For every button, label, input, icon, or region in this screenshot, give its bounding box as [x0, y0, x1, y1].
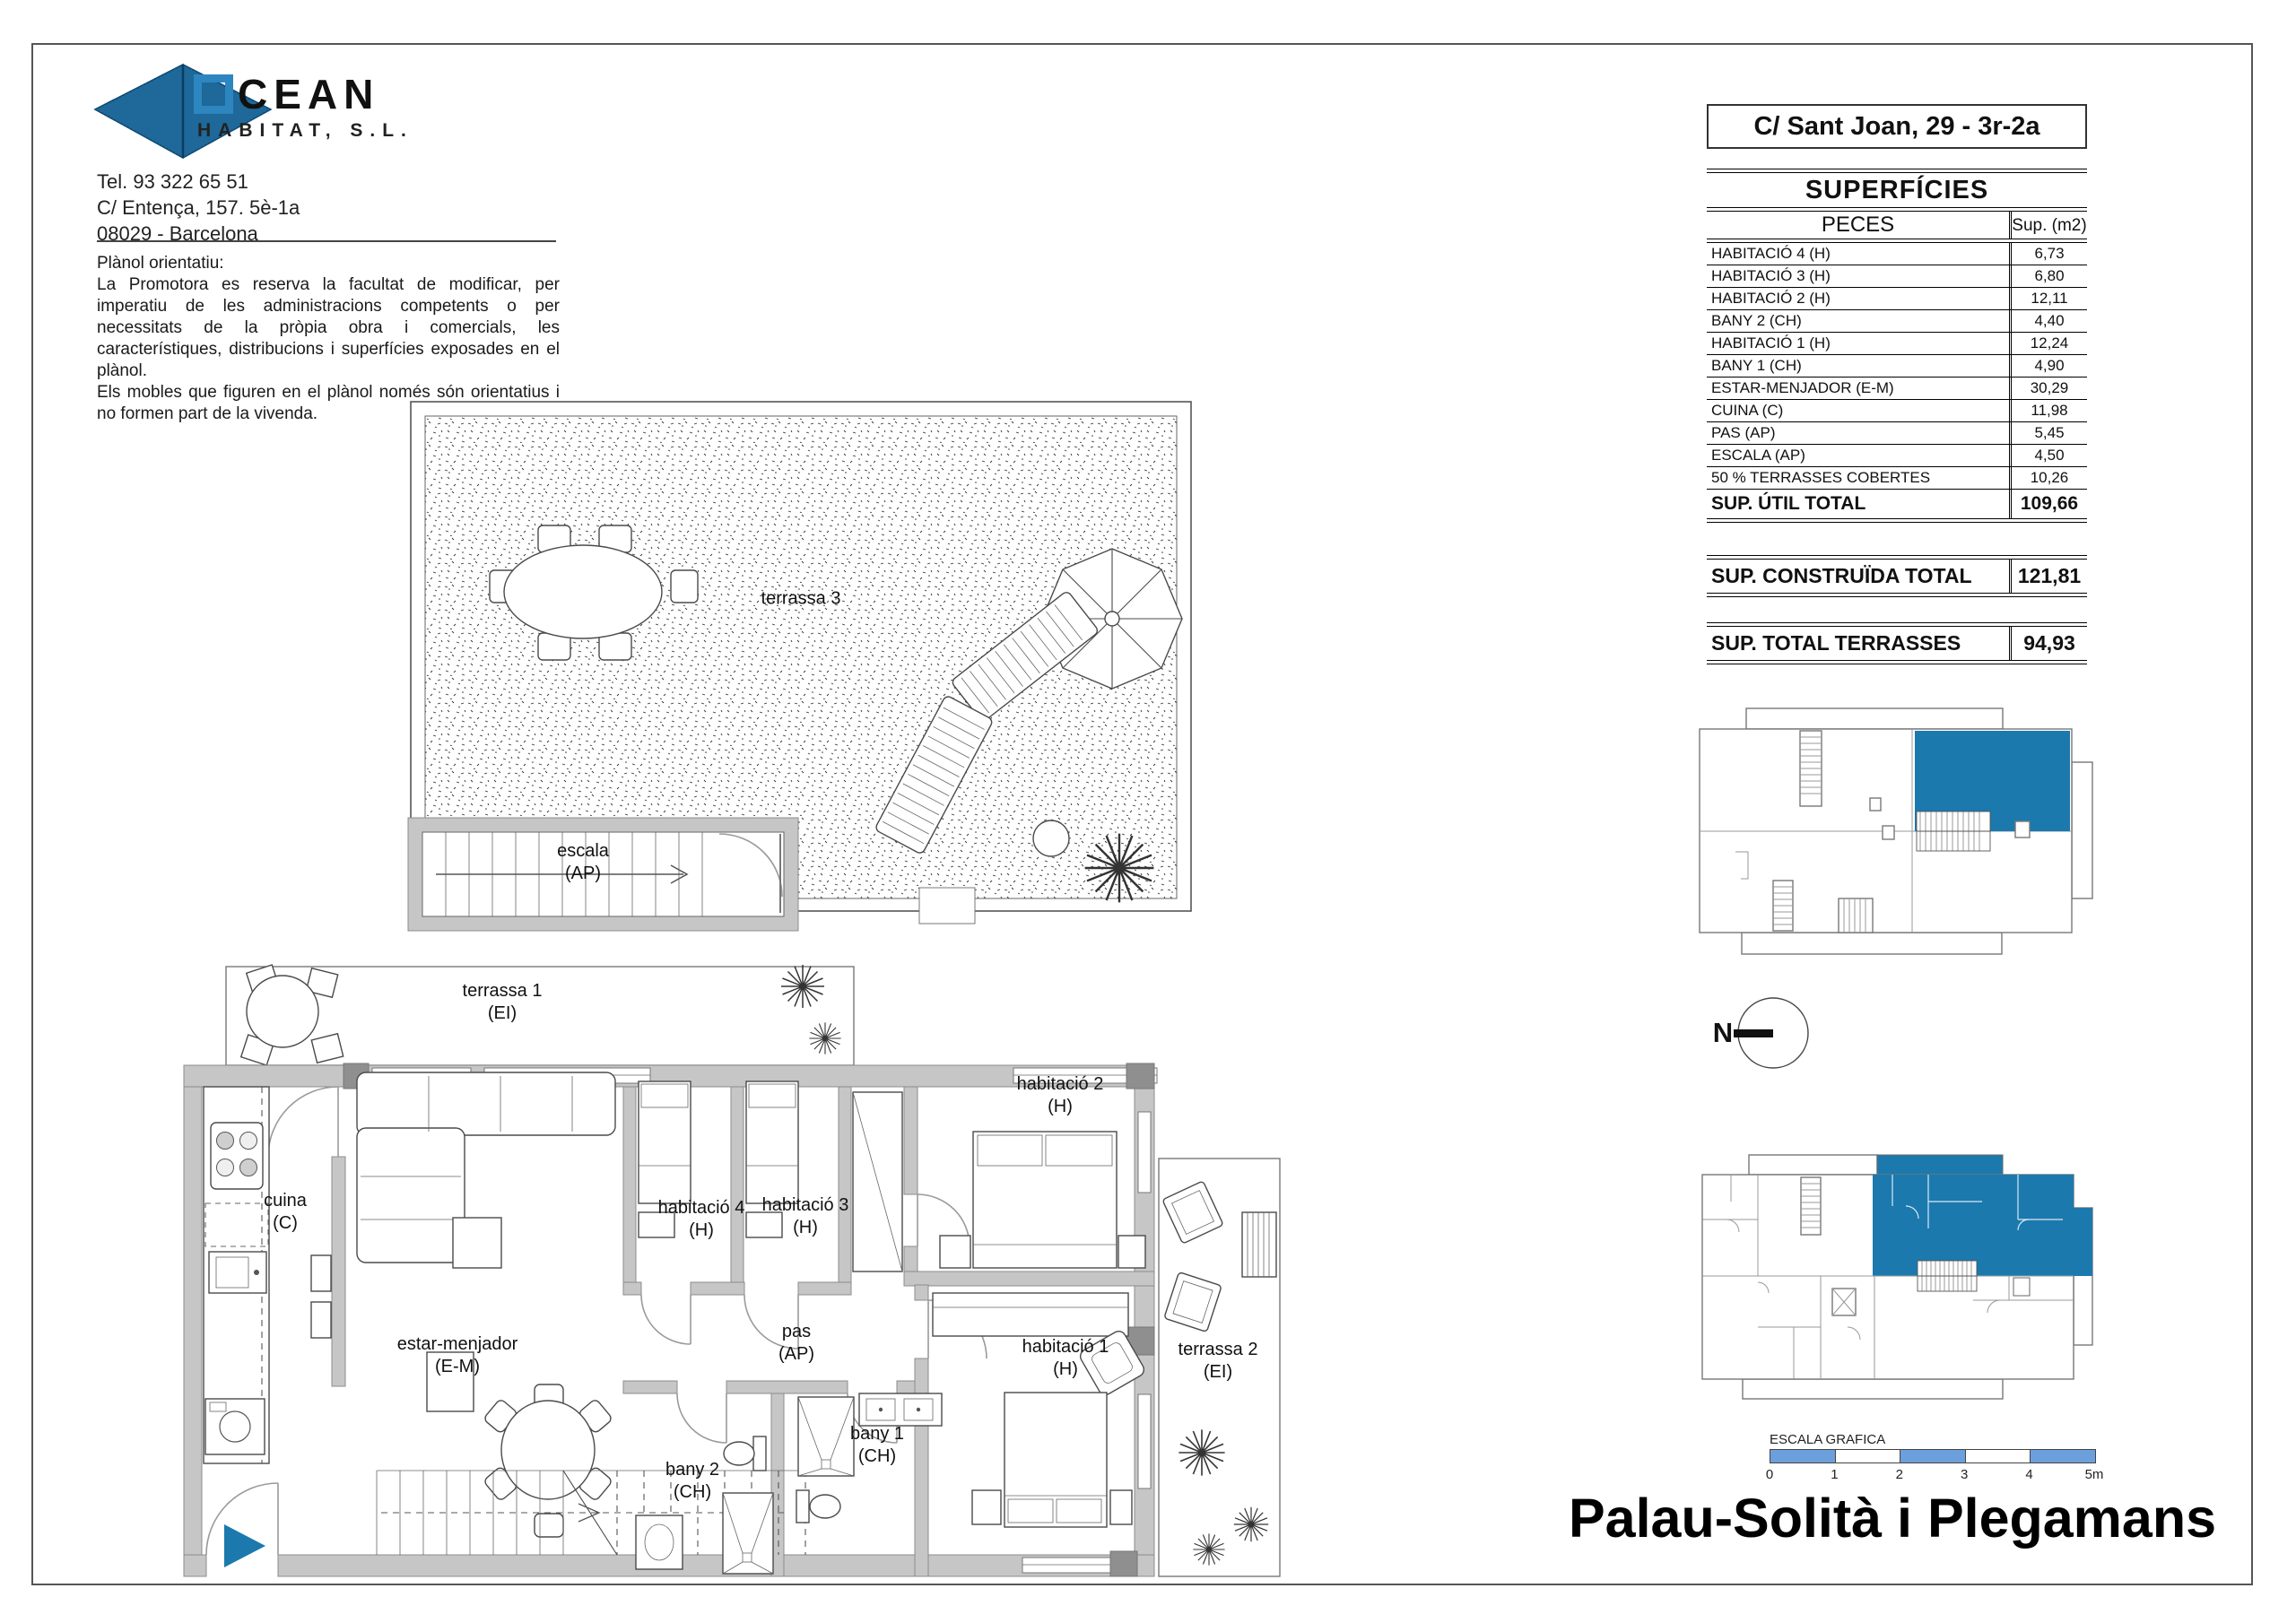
- logo: CEAN HABITAT, S.L.: [93, 54, 631, 170]
- room-name: cuina: [264, 1190, 307, 1212]
- room-code: (AP): [778, 1343, 814, 1366]
- room-label-cuina: cuina (C): [264, 1190, 307, 1235]
- surface-row: BANY 1 (CH)4,90: [1707, 355, 2087, 378]
- side-table: [1033, 820, 1069, 856]
- header-divider: [97, 240, 556, 242]
- scale-tick: 5m: [2085, 1467, 2104, 1482]
- total-terraces-value: 94,93: [2009, 627, 2087, 660]
- room-code: (CH): [665, 1481, 719, 1504]
- scale-ticks: 012345m: [1770, 1467, 2096, 1485]
- scale-bar-segment: [2031, 1450, 2095, 1462]
- surface-row-label: HABITACIÓ 3 (H): [1707, 265, 2009, 287]
- room-name: escala: [557, 840, 609, 863]
- living-room-furniture: [311, 1072, 615, 1537]
- company-header: CEAN HABITAT, S.L.: [93, 54, 631, 170]
- surface-row-label: HABITACIÓ 1 (H): [1707, 333, 2009, 354]
- room-name: bany 2: [665, 1459, 719, 1481]
- scale-tick: 4: [2025, 1467, 2032, 1482]
- surfaces-panel: C/ Sant Joan, 29 - 3r-2a SUPERFÍCIES PEC…: [1707, 104, 2087, 664]
- key-plan-floor: [1695, 1148, 2126, 1408]
- room-name: estar-menjador: [397, 1333, 518, 1356]
- room-code: (C): [264, 1212, 307, 1235]
- main-floor-plan: [175, 950, 1296, 1589]
- surface-row: 50 % TERRASSES COBERTES10,26: [1707, 467, 2087, 490]
- surface-row: CUINA (C)11,98: [1707, 400, 2087, 422]
- surface-row-value: 6,80: [2009, 265, 2087, 287]
- surface-row-label: ESCALA (AP): [1707, 445, 2009, 466]
- room-code: (H): [1022, 1358, 1109, 1381]
- scale-bar-label: ESCALA GRAFICA: [1770, 1432, 1885, 1447]
- scale-bar-segment: [1836, 1450, 1901, 1462]
- surface-row: HABITACIÓ 4 (H)6,73: [1707, 243, 2087, 265]
- surface-row: PAS (AP)5,45: [1707, 422, 2087, 445]
- surface-row-label: HABITACIÓ 2 (H): [1707, 288, 2009, 309]
- room-label-terrassa3: terrassa 3: [761, 588, 841, 611]
- room-name: habitació 1: [1022, 1336, 1109, 1358]
- total-util-value: 109,66: [2009, 490, 2087, 518]
- surface-row-value: 5,45: [2009, 422, 2087, 444]
- scale-tick: 3: [1961, 1467, 1968, 1482]
- project-title: Palau-Solità i Plegamans: [1543, 1487, 2242, 1549]
- company-street: C/ Entença, 157. 5è-1a: [97, 195, 300, 221]
- scale-bar-segment: [1770, 1450, 1836, 1462]
- scale-tick: 0: [1766, 1467, 1773, 1482]
- surface-row: HABITACIÓ 3 (H)6,80: [1707, 265, 2087, 288]
- surface-row-value: 4,90: [2009, 355, 2087, 377]
- room-name: habitació 4: [658, 1197, 745, 1219]
- surface-row-value: 10,26: [2009, 467, 2087, 489]
- key-roof-stairs: [1917, 811, 1990, 851]
- total-built-label: SUP. CONSTRUÏDA TOTAL: [1707, 560, 2009, 593]
- surfaces-header-sup: Sup. (m2): [2009, 212, 2087, 239]
- total-terraces-label: SUP. TOTAL TERRASSES: [1707, 627, 2009, 660]
- room-code: (E-M): [397, 1356, 518, 1378]
- rule: [1707, 660, 2087, 664]
- company-city: 08029 - Barcelona: [97, 221, 300, 247]
- surface-row: BANY 2 (CH)4,40: [1707, 310, 2087, 333]
- room-code: (EI): [463, 1002, 543, 1025]
- wardrobe: [853, 1092, 902, 1271]
- total-built-box: SUP. CONSTRUÏDA TOTAL 121,81: [1707, 555, 2087, 597]
- company-name-rest: CEAN: [238, 70, 379, 118]
- total-terraces-box: SUP. TOTAL TERRASSES 94,93: [1707, 622, 2087, 664]
- total-util-label: SUP. ÚTIL TOTAL: [1707, 490, 2009, 518]
- surface-row-value: 12,11: [2009, 288, 2087, 309]
- room-name: habitació 2: [1017, 1073, 1104, 1096]
- roof-terrace-plan: [395, 390, 1202, 942]
- surfaces-header-row: PECES Sup. (m2): [1707, 212, 2087, 239]
- surface-row-label: BANY 1 (CH): [1707, 355, 2009, 377]
- key-plan-roof: [1695, 704, 2099, 964]
- company-name: CEAN: [194, 70, 413, 118]
- room-code: (H): [1017, 1096, 1104, 1118]
- room-code: (AP): [557, 863, 609, 885]
- room-label-bany2: bany 2 (CH): [665, 1459, 719, 1504]
- surfaces-header-pieces: PECES: [1707, 212, 2009, 239]
- company-subname: HABITAT, S.L.: [197, 120, 413, 142]
- bedroom1-furniture: [972, 1393, 1132, 1527]
- disclaimer-title: Plànol orientatiu:: [97, 253, 560, 274]
- surface-row-value: 4,50: [2009, 445, 2087, 466]
- rule: [1707, 518, 2087, 523]
- plant-icon: [809, 1022, 840, 1054]
- surface-row: HABITACIÓ 1 (H)12,24: [1707, 333, 2087, 355]
- room-label-bany1: bany 1 (CH): [850, 1423, 904, 1468]
- plant-icon: [781, 965, 824, 1008]
- surfaces-total-util-row: SUP. ÚTIL TOTAL 109,66: [1707, 490, 2087, 518]
- entrance-arrow-icon: [224, 1524, 265, 1567]
- room-label-terrassa1: terrassa 1 (EI): [463, 980, 543, 1025]
- room-label-hab4: habitació 4 (H): [658, 1197, 745, 1242]
- surface-row-label: HABITACIÓ 4 (H): [1707, 243, 2009, 265]
- surface-row-label: ESTAR-MENJADOR (E-M): [1707, 378, 2009, 399]
- surface-row-value: 4,40: [2009, 310, 2087, 332]
- room-label-terrassa2: terrassa 2 (EI): [1178, 1339, 1258, 1384]
- north-label: N: [1713, 1017, 1733, 1049]
- disclaimer-body1: La Promotora es reserva la facultat de m…: [97, 274, 560, 382]
- terrace-access-hatch: [919, 888, 975, 924]
- surface-row-label: PAS (AP): [1707, 422, 2009, 444]
- surface-row-label: BANY 2 (CH): [1707, 310, 2009, 332]
- room-name: bany 1: [850, 1423, 904, 1445]
- total-built-value: 121,81: [2009, 560, 2087, 593]
- surface-row-label: CUINA (C): [1707, 400, 2009, 421]
- surfaces-title: SUPERFÍCIES: [1707, 173, 2087, 207]
- room-label-pas: pas (AP): [778, 1321, 814, 1366]
- surface-row: ESCALA (AP)4,50: [1707, 445, 2087, 467]
- scale-bar-segment: [1966, 1450, 2031, 1462]
- room-code: (EI): [1178, 1361, 1258, 1384]
- scale-bar-segments: [1770, 1449, 2096, 1463]
- surfaces-rows: HABITACIÓ 4 (H)6,73HABITACIÓ 3 (H)6,80HA…: [1707, 243, 2087, 490]
- total-terraces-row: SUP. TOTAL TERRASSES 94,93: [1707, 627, 2087, 660]
- unit-title: C/ Sant Joan, 29 - 3r-2a: [1707, 104, 2087, 149]
- room-label-estar: estar-menjador (E-M): [397, 1333, 518, 1378]
- kitchen-fixtures: [204, 1087, 269, 1463]
- rule: [1707, 593, 2087, 597]
- logo-o-square-icon: [194, 74, 233, 114]
- surface-row-value: 30,29: [2009, 378, 2087, 399]
- room-name: terrassa 1: [463, 980, 543, 1002]
- room-code: (H): [762, 1217, 849, 1239]
- surface-row-value: 11,98: [2009, 400, 2087, 421]
- scale-tick: 1: [1831, 1467, 1838, 1482]
- plan-sheet: CEAN HABITAT, S.L. Tel. 93 322 65 51 C/ …: [0, 0, 2296, 1623]
- company-tel: Tel. 93 322 65 51: [97, 169, 300, 195]
- surface-row: ESTAR-MENJADOR (E-M)30,29: [1707, 378, 2087, 400]
- company-address: Tel. 93 322 65 51 C/ Entença, 157. 5è-1a…: [97, 169, 300, 247]
- room-code: (H): [658, 1219, 745, 1242]
- room-code: (CH): [850, 1445, 904, 1468]
- logo-text: CEAN HABITAT, S.L.: [194, 70, 413, 142]
- terrassa1-table: [241, 965, 344, 1065]
- scale-tick: 2: [1896, 1467, 1903, 1482]
- room-name: terrassa 3: [761, 588, 841, 611]
- room-label-hab1: habitació 1 (H): [1022, 1336, 1109, 1381]
- room-label-hab2: habitació 2 (H): [1017, 1073, 1104, 1118]
- surface-row-label: 50 % TERRASSES COBERTES: [1707, 467, 2009, 489]
- room-name: habitació 3: [762, 1194, 849, 1217]
- room-label-escala: escala (AP): [557, 840, 609, 885]
- scale-bar-segment: [1900, 1450, 1966, 1462]
- room-label-hab3: habitació 3 (H): [762, 1194, 849, 1239]
- surface-row: HABITACIÓ 2 (H)12,11: [1707, 288, 2087, 310]
- room-name: terrassa 2: [1178, 1339, 1258, 1361]
- room-name: pas: [778, 1321, 814, 1343]
- surface-row-value: 6,73: [2009, 243, 2087, 265]
- bath2-fixtures: [636, 1436, 773, 1574]
- surface-row-value: 12,24: [2009, 333, 2087, 354]
- total-built-row: SUP. CONSTRUÏDA TOTAL 121,81: [1707, 560, 2087, 593]
